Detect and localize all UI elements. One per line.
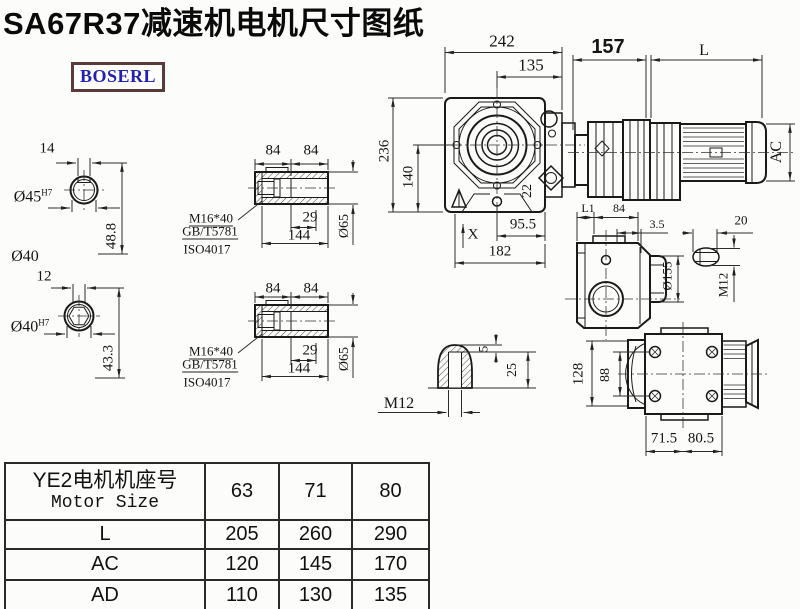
dim-hs1-dia: Ø65 — [338, 214, 352, 238]
cell: 205 — [205, 520, 279, 549]
dim-rear-bolt-spacing: 88 — [599, 368, 613, 382]
dim-hs2-dia: Ø65 — [338, 347, 352, 371]
table-row-L: L 205 260 290 — [5, 520, 429, 549]
cell: 145 — [279, 549, 352, 580]
cell: 110 — [205, 580, 279, 609]
dim-rear-right: 80.5 — [688, 432, 714, 447]
dim-hs1-seg2: 84 — [304, 144, 319, 159]
dim-front-width: 242 — [489, 33, 515, 50]
motor-size-table: YE2电机机座号 Motor Size 63 71 80 L 205 260 2… — [4, 462, 430, 609]
dim-depth-top: 48.8 — [105, 223, 120, 249]
drawing-sheet: SA67R37减速机电机尺寸图纸 BOSERL .p2{fill:none;st… — [0, 0, 800, 609]
dim-hs2-seg1: 84 — [266, 282, 281, 297]
dim-side-l1: L1 — [581, 202, 594, 214]
row-label: AD — [5, 580, 205, 609]
dim-hs1-seg1: 84 — [266, 144, 281, 159]
dim-front-x-marker: X — [468, 228, 479, 243]
dim-plug-tip: 5 — [477, 346, 490, 353]
cell: 130 — [279, 580, 352, 609]
dim-key-width-top: 14 — [40, 142, 55, 157]
dim-front-foot: 95.5 — [510, 218, 536, 233]
dim-hs2-length: 144 — [288, 362, 311, 377]
cell: 170 — [352, 549, 429, 580]
dim-stud-width: 20 — [735, 214, 748, 227]
dim-hs1-step: 29 — [303, 211, 318, 226]
dim-rear-left: 71.5 — [651, 432, 677, 447]
view-rear — [586, 322, 770, 456]
dim-front-offset: 135 — [518, 57, 544, 74]
dim-side-gap: 3.5 — [650, 218, 665, 230]
cell: 135 — [352, 580, 429, 609]
row-label: AC — [5, 549, 205, 580]
table-row-AD: AD 110 130 135 — [5, 580, 429, 609]
dim-hs1-std1: GB/T5781 — [182, 225, 238, 240]
dim-side-flange-dia: Ø155 — [661, 262, 674, 291]
dim-plug-thread: M12 — [384, 396, 414, 412]
cell: 260 — [279, 520, 352, 549]
dim-hs2-std2: ISO4017 — [184, 376, 231, 389]
cell: 120 — [205, 549, 279, 580]
dim-bore-bottom: Ø40H7 — [11, 318, 50, 335]
dim-hs2-std1: GB/T5781 — [182, 358, 238, 373]
dim-hs2-seg2: 84 — [304, 282, 319, 297]
dim-hs2-step: 29 — [303, 344, 318, 359]
table-header-col-80: 80 — [352, 463, 429, 520]
table-row-AC: AC 120 145 170 — [5, 549, 429, 580]
dim-stud-thread: M12 — [717, 273, 730, 298]
dim-shaft-dia: Ø40 — [11, 249, 39, 265]
view-motor — [568, 55, 795, 200]
dim-hs1-length: 144 — [288, 229, 311, 244]
dim-hs1-std2: ISO4017 — [184, 243, 231, 256]
row-label: L — [5, 520, 205, 549]
table-header-motor-size: YE2电机机座号 Motor Size — [5, 463, 205, 520]
table-header-col-71: 71 — [279, 463, 352, 520]
dim-front-bolt: 22 — [521, 184, 535, 198]
table-header-col-63: 63 — [205, 463, 279, 520]
dim-depth-bottom: 43.3 — [102, 345, 117, 371]
dim-motor-gear-length: 157 — [591, 37, 624, 57]
dim-side-width: 84 — [613, 202, 625, 214]
dim-motor-dia: AC — [769, 141, 785, 163]
dim-bore-top: Ø45H7 — [14, 188, 53, 205]
cell: 290 — [352, 520, 429, 549]
dim-front-height: 236 — [378, 140, 393, 163]
dim-front-base: 182 — [489, 245, 512, 260]
dim-front-axis-height: 140 — [402, 166, 417, 189]
dim-key-width-bottom: 12 — [37, 270, 52, 285]
view-front — [388, 47, 585, 268]
dim-motor-length: L — [699, 43, 709, 59]
dim-plug-depth: 25 — [506, 363, 520, 377]
dim-rear-height: 128 — [572, 363, 587, 386]
